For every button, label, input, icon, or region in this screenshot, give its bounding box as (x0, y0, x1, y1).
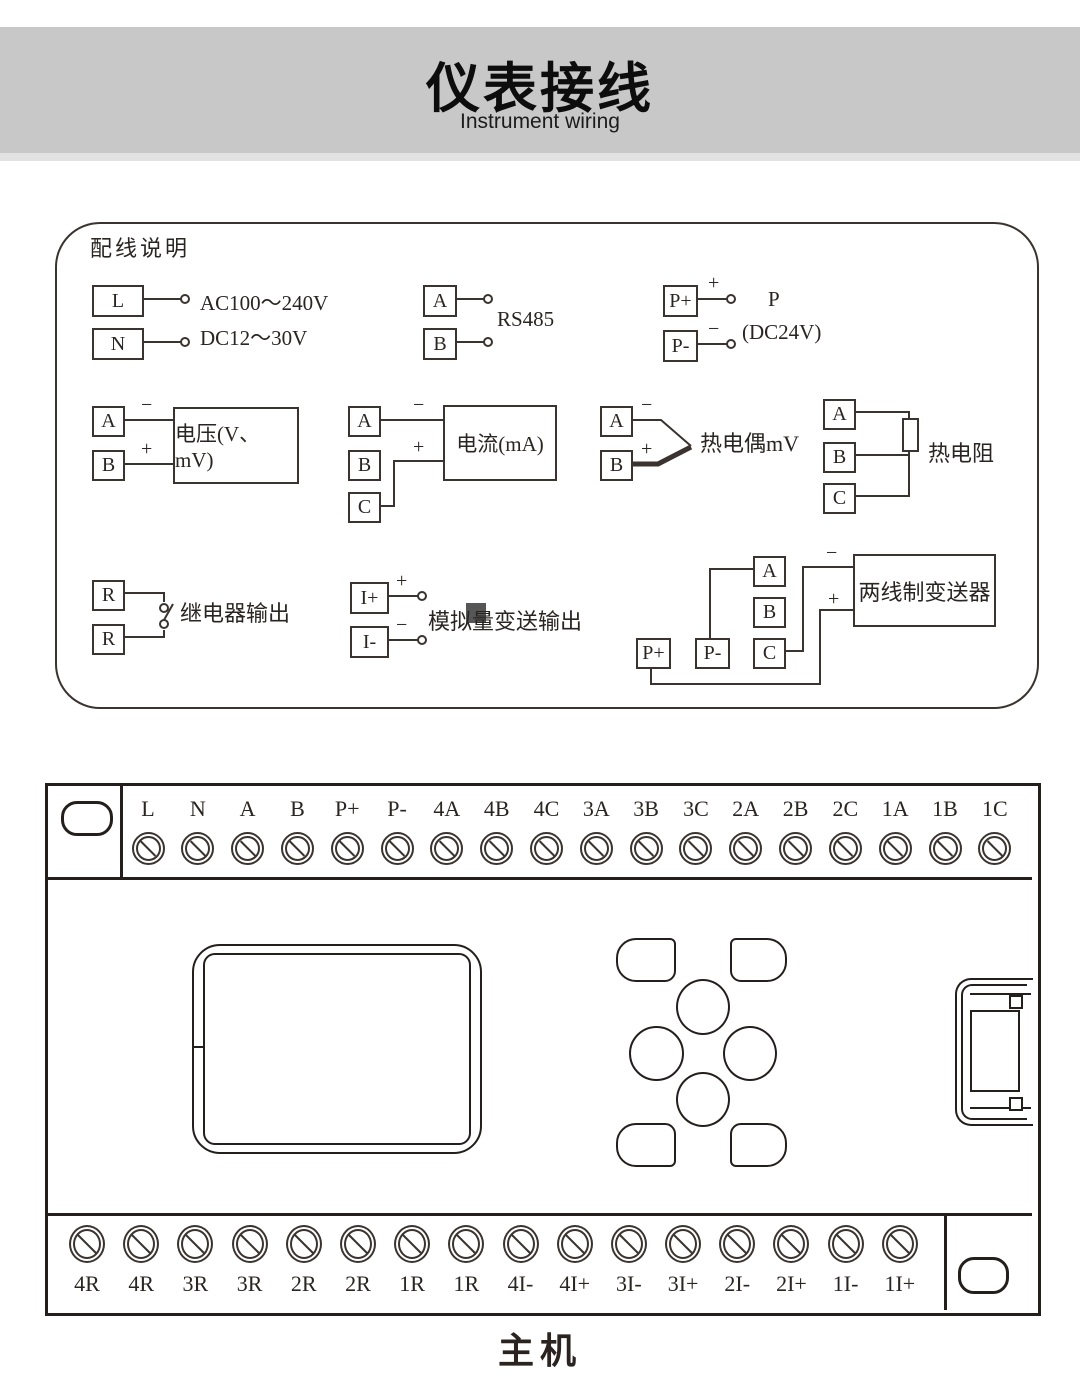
terminal: A (225, 786, 271, 877)
bottom-terminal-row: 4R 4R 3R 3R 2R 2R 1R 1R 4I- 4I+ 3I- 3I+ … (48, 1216, 947, 1310)
screw-icon (231, 832, 264, 865)
power-out-spec: (DC24V) (742, 320, 821, 345)
connector-tab-top (1009, 995, 1023, 1009)
terminal-box-B: B (348, 450, 381, 481)
terminal: N (175, 786, 221, 877)
terminal: L (125, 786, 171, 877)
polarity-plus: + (141, 438, 152, 461)
terminal-box-C: C (348, 492, 381, 523)
terminal-label: 2R (345, 1269, 371, 1299)
polarity-plus: + (828, 588, 839, 611)
key-bottom-left (616, 1123, 676, 1167)
terminal-label: 4R (128, 1269, 154, 1299)
terminal: 2A (723, 786, 769, 877)
terminal: 2I- (712, 1216, 762, 1310)
screw-icon (480, 832, 513, 865)
terminal-label: 2I+ (776, 1269, 807, 1299)
screw-icon (123, 1225, 159, 1263)
terminal-label: 3B (633, 794, 659, 824)
screw-icon (611, 1225, 647, 1263)
terminal-box-A: A (423, 285, 457, 317)
top-terminal-row: L N A B P+ P- 4A 4B 4C 3A 3B 3C 2A 2B 2C… (123, 786, 1032, 877)
key-left (629, 1026, 684, 1081)
terminal-label: 3R (183, 1269, 209, 1299)
terminal-label: 2A (732, 794, 759, 824)
screw-icon (929, 832, 962, 865)
terminal-box-I-minus: I- (350, 626, 389, 658)
terminal-label: 1I- (833, 1269, 859, 1299)
terminal: 2C (822, 786, 868, 877)
terminal-label: 2R (291, 1269, 317, 1299)
polarity-plus: + (396, 570, 407, 593)
polarity-minus: − (708, 318, 719, 341)
terminal-label: 1B (932, 794, 958, 824)
terminal-box-A: A (823, 399, 856, 430)
screw-icon (882, 1225, 918, 1263)
screw-icon (879, 832, 912, 865)
screw-icon (530, 832, 563, 865)
terminal-label: 3C (683, 794, 709, 824)
connector-slot (970, 1010, 1020, 1092)
terminal-box-C: C (753, 638, 786, 669)
terminal: 3I+ (658, 1216, 708, 1310)
terminal-box-N: N (92, 328, 144, 360)
terminal: B (274, 786, 320, 877)
terminal-label: A (240, 794, 256, 824)
screw-icon (779, 832, 812, 865)
terminal: 4B (474, 786, 520, 877)
polarity-minus: − (641, 394, 652, 417)
terminal-box-B: B (600, 450, 633, 481)
screw-icon (665, 1225, 701, 1263)
relay-output-label: 继电器输出 (180, 596, 290, 628)
terminal: P- (374, 786, 420, 877)
polarity-plus: + (708, 272, 719, 295)
terminal: 1I+ (875, 1216, 925, 1310)
terminal-label: 4I+ (559, 1269, 590, 1299)
key-bottom-right (730, 1123, 787, 1167)
screw-icon (381, 832, 414, 865)
terminal-box-A: A (92, 406, 125, 437)
bottom-terminal-strip: 4R 4R 3R 3R 2R 2R 1R 1R 4I- 4I+ 3I- 3I+ … (48, 1213, 1032, 1310)
analog-output-label: 模拟量变送输出 (428, 604, 582, 636)
terminal: 3B (623, 786, 669, 877)
terminal-label: N (190, 794, 206, 824)
terminal-label: 4R (74, 1269, 100, 1299)
terminal: 3R (225, 1216, 275, 1310)
mounting-hole-icon (61, 801, 113, 836)
terminal-box-A: A (600, 406, 633, 437)
terminal-label: 4B (484, 794, 510, 824)
screw-icon (557, 1225, 593, 1263)
terminal: 1I- (821, 1216, 871, 1310)
key-top-right (730, 938, 787, 982)
terminal-box-B: B (823, 442, 856, 473)
key-top-left (616, 938, 676, 982)
terminal-label: 2I- (724, 1269, 750, 1299)
screw-icon (340, 1225, 376, 1263)
screw-icon (69, 1225, 105, 1263)
screw-icon (773, 1225, 809, 1263)
thermocouple-label: 热电偶mV (700, 426, 799, 458)
screw-icon (177, 1225, 213, 1263)
two-wire-transmitter-box: 两线制变送器 (853, 554, 996, 627)
terminal: 4R (116, 1216, 166, 1310)
screw-icon (430, 832, 463, 865)
terminal: 3A (573, 786, 619, 877)
page-subtitle: Instrument wiring (0, 110, 1080, 134)
terminal-label: 4C (534, 794, 560, 824)
key-right (723, 1026, 777, 1081)
screw-icon (286, 1225, 322, 1263)
terminal-label: 3A (583, 794, 610, 824)
polarity-minus: − (141, 394, 152, 417)
screw-icon (281, 832, 314, 865)
terminal-label: 1A (882, 794, 909, 824)
terminal-label: 1R (399, 1269, 425, 1299)
polarity-minus: − (826, 542, 837, 565)
terminal-box-B: B (753, 597, 786, 628)
display-notch (192, 1046, 203, 1048)
terminal-box-B: B (423, 328, 457, 360)
rs485-label: RS485 (497, 307, 554, 332)
device-caption: 主机 (0, 1322, 1080, 1374)
terminal: 3C (673, 786, 719, 877)
terminal: 3I- (604, 1216, 654, 1310)
terminal-label: 1C (982, 794, 1008, 824)
terminal: 3R (170, 1216, 220, 1310)
top-left-cell (48, 786, 123, 877)
power-range-dc: DC12～30V (200, 322, 307, 352)
terminal: P+ (324, 786, 370, 877)
wiring-notes-title: 配线说明 (90, 231, 190, 263)
terminal-box-P-minus: P- (695, 638, 730, 669)
polarity-minus: − (413, 394, 424, 417)
terminal-label: P- (387, 794, 407, 824)
screw-icon (394, 1225, 430, 1263)
main-unit-body: L N A B P+ P- 4A 4B 4C 3A 3B 3C 2A 2B 2C… (45, 783, 1041, 1316)
connector-tab-bottom (1009, 1097, 1023, 1111)
terminal: 1R (441, 1216, 491, 1310)
power-out-name: P (768, 287, 780, 312)
screw-icon (331, 832, 364, 865)
terminal-label: 1I+ (884, 1269, 915, 1299)
terminal-box-A: A (348, 406, 381, 437)
mounting-hole-icon (958, 1257, 1009, 1294)
terminal-box-L: L (92, 285, 144, 317)
terminal-label: 2C (833, 794, 859, 824)
screw-icon (729, 832, 762, 865)
current-input-box: 电流(mA) (443, 405, 557, 481)
screw-icon (448, 1225, 484, 1263)
terminal-box-R: R (92, 624, 125, 655)
terminal-box-A: A (753, 556, 786, 587)
terminal: 4R (62, 1216, 112, 1310)
terminal-box-R: R (92, 580, 125, 611)
terminal: 2I+ (766, 1216, 816, 1310)
terminal: 4C (524, 786, 570, 877)
terminal-box-P-plus: P+ (636, 638, 671, 669)
rtd-label: 热电阻 (928, 436, 994, 468)
terminal-label: P+ (335, 794, 360, 824)
power-range-ac: AC100～240V (200, 287, 328, 317)
terminal-label: 1R (453, 1269, 479, 1299)
screw-icon (181, 832, 214, 865)
terminal-label: B (290, 794, 305, 824)
terminal: 2B (773, 786, 819, 877)
terminal-box-P-plus: P+ (663, 285, 698, 317)
terminal-box-P-minus: P- (663, 330, 698, 362)
screw-icon (232, 1225, 268, 1263)
key-up (676, 979, 730, 1035)
terminal-label: 3R (237, 1269, 263, 1299)
terminal: 4I+ (550, 1216, 600, 1310)
bottom-right-cell (944, 1216, 1032, 1310)
polarity-plus: + (641, 438, 652, 461)
screw-icon (630, 832, 663, 865)
terminal-label: 4I- (508, 1269, 534, 1299)
screw-icon (503, 1225, 539, 1263)
terminal: 2R (279, 1216, 329, 1310)
terminal-box-C: C (823, 483, 856, 514)
terminal-label: 3I- (616, 1269, 642, 1299)
screw-icon (829, 832, 862, 865)
terminal-label: 4A (433, 794, 460, 824)
header-band-shadow (0, 153, 1080, 161)
screw-icon (132, 832, 165, 865)
terminal: 1A (872, 786, 918, 877)
key-down (676, 1072, 730, 1127)
terminal: 2R (333, 1216, 383, 1310)
terminal: 1B (922, 786, 968, 877)
screw-icon (719, 1225, 755, 1263)
terminal-box-B: B (92, 450, 125, 481)
resistor-icon (902, 418, 919, 452)
terminal-box-I-plus: I+ (350, 582, 389, 614)
display-screen (203, 953, 471, 1145)
screw-icon (978, 832, 1011, 865)
terminal-label: L (141, 794, 154, 824)
terminal: 4I- (496, 1216, 546, 1310)
terminal: 1C (972, 786, 1018, 877)
polarity-plus: + (413, 436, 424, 459)
screw-icon (580, 832, 613, 865)
screw-icon (828, 1225, 864, 1263)
screw-icon (679, 832, 712, 865)
terminal-label: 3I+ (668, 1269, 699, 1299)
polarity-minus: − (396, 614, 407, 637)
terminal: 4A (424, 786, 470, 877)
voltage-input-box: 电压(V、mV) (173, 407, 299, 484)
top-terminal-strip: L N A B P+ P- 4A 4B 4C 3A 3B 3C 2A 2B 2C… (48, 786, 1032, 880)
terminal: 1R (387, 1216, 437, 1310)
terminal-label: 2B (783, 794, 809, 824)
